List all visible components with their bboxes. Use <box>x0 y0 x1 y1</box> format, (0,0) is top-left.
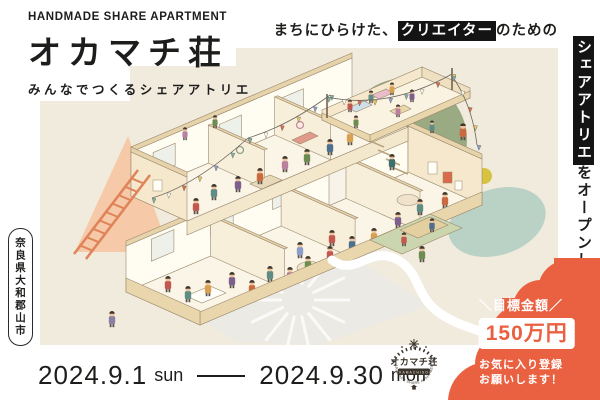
header: HANDMADE SHARE APARTMENT オカマチ荘 みんなでつくるシェ… <box>28 11 252 98</box>
end-date: 2024.9.30 <box>259 360 384 391</box>
stamp-sparkle-icon <box>409 339 419 349</box>
period-dash <box>197 375 245 377</box>
cta-line1: お気に入り登録 <box>442 358 600 373</box>
eyebrow-text: HANDMADE SHARE APARTMENT <box>28 11 252 23</box>
goal-amount: 150万円 <box>479 318 575 349</box>
goal-label-text: 目標金額 <box>493 298 549 313</box>
location-pill: 奈良県大和郡山市 <box>8 228 33 346</box>
goal-badge: ＼目標金額／ 150万円 お気に入り登録 お願いします！ <box>442 258 600 400</box>
start-date: 2024.9.1 <box>38 360 147 391</box>
tagline-post: のための <box>496 23 558 39</box>
vertical-slogan-highlight: シェアアトリエ <box>573 36 594 165</box>
goal-label: ＼目標金額／ <box>442 295 600 314</box>
start-day: sun <box>154 365 183 386</box>
tagline: まちにひらけた、クリエイターのための <box>274 19 558 40</box>
subtitle: みんなでつくるシェアアトリエ <box>28 79 252 98</box>
page-title: オカマチ荘 <box>28 26 252 74</box>
okamachiso-stamp-logo: オカマチ荘 OKAMACHISOU HANDMADE SHARE APARTME… <box>386 334 442 396</box>
stamp-dot <box>401 346 403 348</box>
stamp-banner-text: OKAMACHISOU <box>395 370 432 374</box>
stamp-dot <box>425 346 427 348</box>
campaign-period: 2024.9.1 sun 2024.9.30 mon <box>38 360 426 391</box>
goal-deco-right: ／ <box>549 298 563 313</box>
stamp-house-icon <box>411 385 417 390</box>
goal-deco-left: ＼ <box>479 298 493 313</box>
tagline-highlight: クリエイター <box>398 21 496 41</box>
cta-line2: お願いします！ <box>442 373 600 388</box>
tagline-pre: まちにひらけた、 <box>274 23 398 39</box>
favorite-cta: お気に入り登録 お願いします！ <box>442 358 600 388</box>
